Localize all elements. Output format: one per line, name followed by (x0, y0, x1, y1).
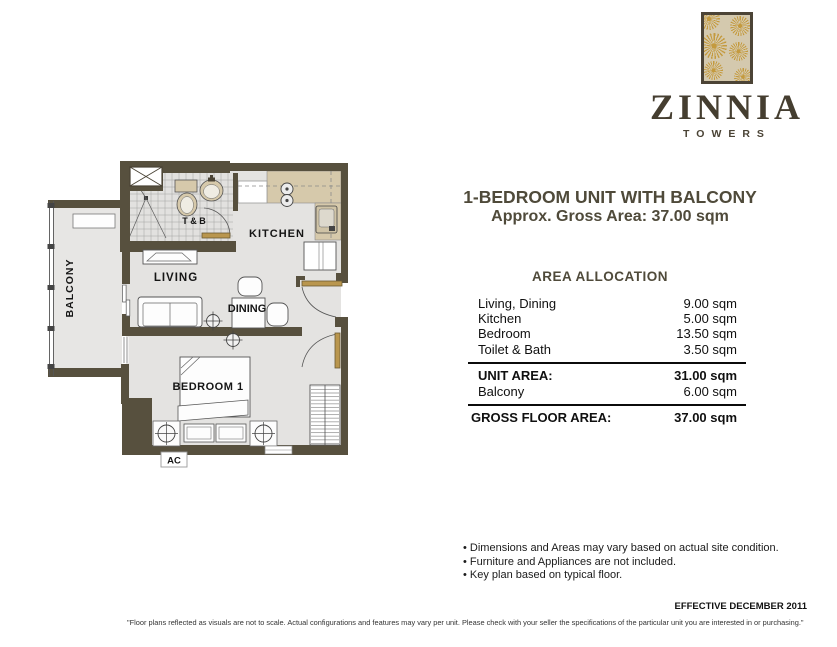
bedside-table (250, 421, 277, 446)
zinnia-logo-mark (701, 12, 753, 84)
balcony-bench (73, 214, 115, 228)
wardrobe (310, 385, 340, 445)
row-label: GROSS FLOOR AREA: (468, 410, 611, 425)
bedroom-window (123, 337, 129, 363)
zinnia-logo: ZINNIA TOWERS (599, 12, 837, 140)
ac-label: AC (167, 456, 181, 467)
row-value: 9.00 sqm (684, 296, 746, 311)
row-value: 31.00 sqm (674, 368, 746, 383)
kitchen-sink (316, 206, 337, 233)
window (265, 446, 292, 454)
row-label: Toilet & Bath (468, 342, 551, 357)
dining-label: DINING (228, 303, 267, 315)
footer-disclaimer: "Floor plans reflected as visuals are no… (127, 618, 817, 627)
logo-subtitle: TOWERS (599, 128, 837, 140)
row-value: 37.00 sqm (674, 410, 746, 425)
row-value: 5.00 sqm (684, 311, 746, 326)
floorplan-flyer-page: { "logo": { "name": "ZINNIA", "subtitle"… (0, 0, 837, 647)
table-row: Bedroom 13.50 sqm (468, 326, 746, 341)
table-divider (468, 404, 746, 407)
unit-area-row: UNIT AREA: 31.00 sqm (468, 368, 746, 383)
table-row: Kitchen 5.00 sqm (468, 311, 746, 326)
unit-title: 1-BEDROOM UNIT WITH BALCONY (420, 187, 800, 208)
gross-floor-area-row: GROSS FLOOR AREA: 37.00 sqm (468, 410, 746, 425)
row-label: Bedroom (468, 326, 531, 341)
row-value: 13.50 sqm (676, 326, 746, 341)
kitchen-label: KITCHEN (249, 228, 305, 240)
balcony-railing (48, 201, 55, 376)
row-label: Living, Dining (468, 296, 556, 311)
row-value: 6.00 sqm (684, 384, 746, 399)
notes-list: Dimensions and Areas may vary based on a… (463, 542, 793, 583)
sofa (138, 297, 202, 327)
note-item: Dimensions and Areas may vary based on a… (463, 542, 793, 556)
flower-burst-icon (704, 61, 723, 80)
balcony-label: BALCONY (64, 259, 76, 318)
flower-burst-icon (701, 12, 720, 30)
effective-date: EFFECTIVE DECEMBER 2011 (674, 601, 807, 612)
note-item: Furniture and Appliances are not include… (463, 556, 793, 570)
logo-wordmark: ZINNIA (599, 88, 837, 126)
table-divider (468, 362, 746, 365)
row-label: UNIT AREA: (468, 368, 553, 383)
tv-console (143, 250, 197, 264)
balcony-row: Balcony 6.00 sqm (468, 384, 746, 399)
living-label: LIVING (154, 272, 198, 284)
tb-label: T & B (182, 216, 206, 226)
row-label: Balcony (468, 384, 524, 399)
dining-chair (267, 303, 288, 326)
flower-burst-icon (701, 33, 727, 59)
area-allocation-heading: AREA ALLOCATION (440, 269, 760, 284)
flower-burst-icon (734, 68, 752, 84)
shaft-box (130, 167, 162, 186)
flower-burst-icon (729, 42, 748, 61)
ac-ledge: AC (161, 452, 187, 467)
note-item: Key plan based on typical floor. (463, 569, 793, 583)
flower-burst-icon (730, 16, 750, 36)
bedside-table (153, 421, 180, 446)
unit-gross-area: Approx. Gross Area: 37.00 sqm (420, 208, 800, 226)
kitchen-cabinet (238, 181, 267, 203)
floor-plan: AC T & B KITCHEN LIVING DINING BEDROOM 1… (30, 150, 350, 470)
table-row: Living, Dining 9.00 sqm (468, 296, 746, 311)
row-label: Kitchen (468, 311, 521, 326)
row-value: 3.50 sqm (684, 342, 746, 357)
table-row: Toilet & Bath 3.50 sqm (468, 342, 746, 357)
toilet (175, 180, 197, 216)
area-allocation-table: Living, Dining 9.00 sqm Kitchen 5.00 sqm… (468, 296, 746, 426)
bedroom-label: BEDROOM 1 (172, 381, 243, 393)
refrigerator (304, 242, 336, 270)
dining-chair (238, 277, 262, 296)
